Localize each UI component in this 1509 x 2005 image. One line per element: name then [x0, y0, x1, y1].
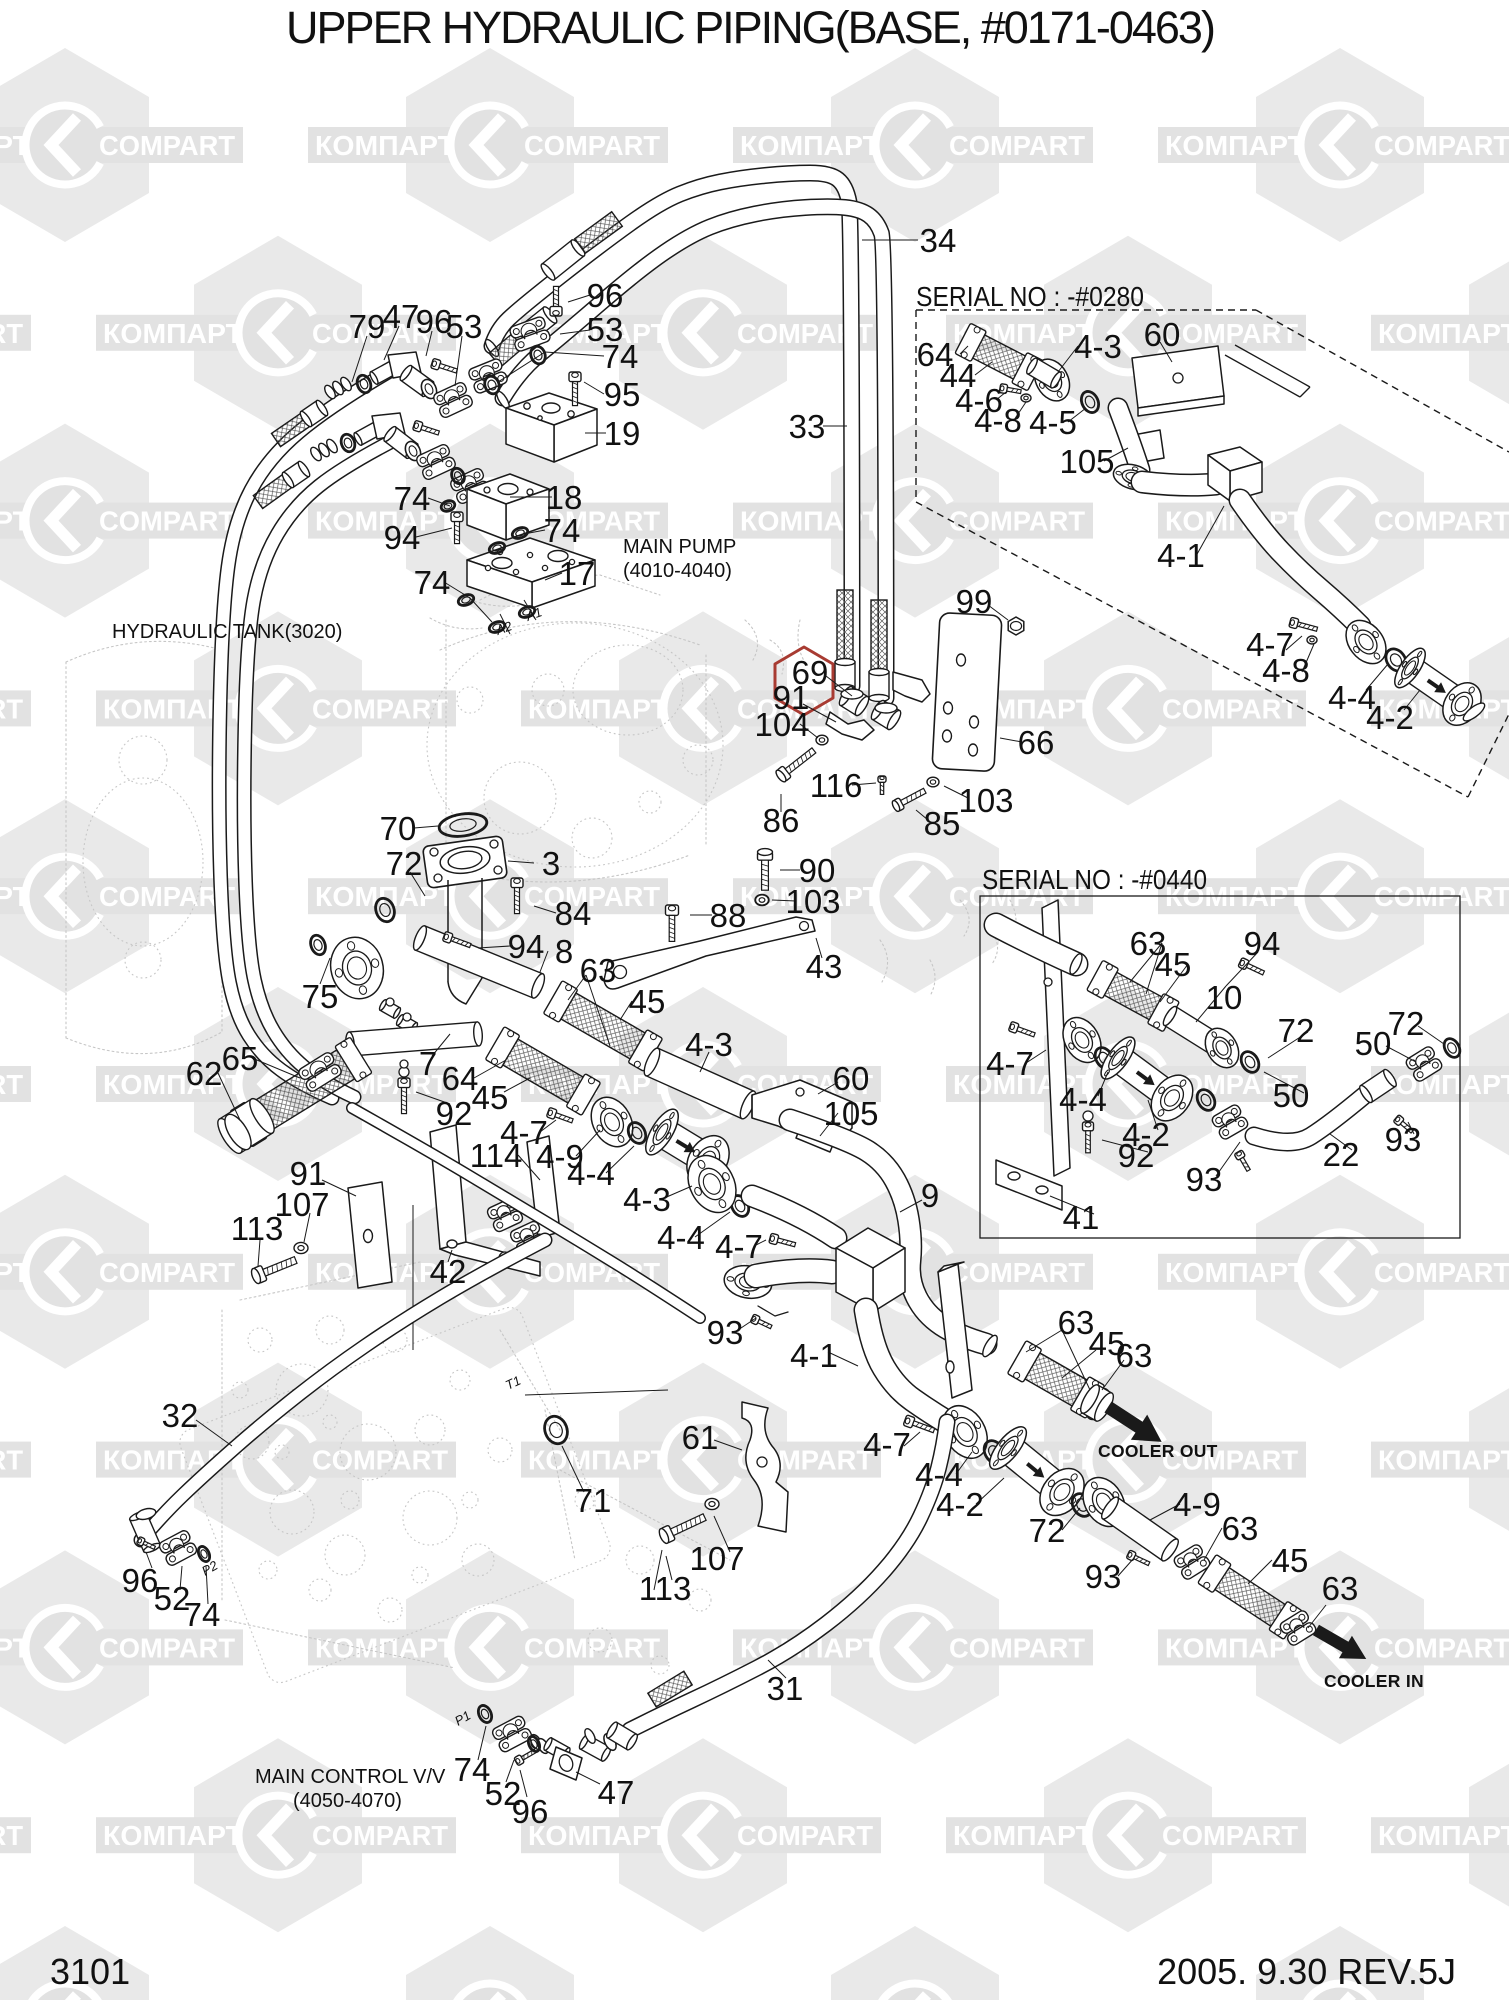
svg-text:КОМПАРТ: КОМПАРТ [1378, 1820, 1509, 1851]
svg-text:66: 66 [1018, 724, 1055, 761]
svg-text:КОМПАРТ: КОМПАРТ [103, 1820, 243, 1851]
svg-text:3: 3 [542, 845, 560, 882]
svg-text:50: 50 [1273, 1077, 1310, 1114]
svg-text:45: 45 [629, 983, 666, 1020]
svg-text:3101: 3101 [50, 1951, 130, 1992]
svg-text:104: 104 [754, 706, 809, 743]
svg-text:4-8: 4-8 [1262, 652, 1310, 689]
svg-text:113: 113 [231, 1210, 284, 1247]
svg-text:COMPART: COMPART [99, 1257, 235, 1288]
svg-text:74: 74 [394, 480, 431, 517]
svg-text:92: 92 [1118, 1137, 1155, 1174]
svg-text:4-1: 4-1 [1157, 537, 1205, 574]
svg-text:(4010-4040): (4010-4040) [623, 560, 732, 582]
svg-text:72: 72 [386, 845, 423, 882]
svg-text:COMPART: COMPART [0, 318, 23, 349]
svg-text:43: 43 [806, 948, 843, 985]
svg-text:47: 47 [383, 298, 420, 335]
svg-text:COMPART: COMPART [737, 1820, 873, 1851]
svg-text:79: 79 [349, 308, 386, 345]
svg-text:32: 32 [162, 1397, 199, 1434]
svg-text:COMPART: COMPART [524, 130, 660, 161]
svg-text:КОМПАРТ: КОМПАРТ [528, 1445, 668, 1476]
svg-text:КОМПАРТ: КОМПАРТ [740, 130, 880, 161]
svg-text:COMPART: COMPART [1162, 693, 1298, 724]
svg-text:COMPART: COMPART [99, 506, 235, 537]
svg-text:КОМПАРТ: КОМПАРТ [0, 130, 30, 161]
svg-text:КОМПАРТ: КОМПАРТ [0, 1257, 30, 1288]
svg-text:COMPART: COMPART [1374, 881, 1509, 912]
svg-text:COMPART: COMPART [312, 693, 448, 724]
svg-text:74: 74 [414, 564, 451, 601]
svg-text:63: 63 [1116, 1337, 1153, 1374]
svg-text:4-2: 4-2 [936, 1486, 984, 1523]
svg-text:КОМПАРТ: КОМПАРТ [315, 1632, 455, 1663]
svg-text:94: 94 [384, 519, 421, 556]
svg-text:COMPART: COMPART [1374, 1632, 1509, 1663]
svg-text:MAIN PUMP: MAIN PUMP [623, 536, 736, 558]
svg-text:113: 113 [639, 1570, 692, 1607]
svg-text:50: 50 [1355, 1025, 1392, 1062]
svg-text:КОМПАРТ: КОМПАРТ [1378, 1445, 1509, 1476]
svg-text:33: 33 [789, 408, 826, 445]
svg-text:COMPART: COMPART [99, 1632, 235, 1663]
svg-text:63: 63 [580, 952, 617, 989]
svg-text:86: 86 [763, 802, 800, 839]
svg-text:88: 88 [710, 897, 747, 934]
svg-text:4-5: 4-5 [1029, 404, 1077, 441]
svg-text:72: 72 [1388, 1005, 1425, 1042]
svg-text:КОМПАРТ: КОМПАРТ [1165, 130, 1305, 161]
svg-text:4-7: 4-7 [986, 1045, 1034, 1082]
svg-text:4-7: 4-7 [863, 1426, 911, 1463]
svg-text:COMPART: COMPART [0, 1069, 23, 1100]
svg-text:КОМПАРТ: КОМПАРТ [0, 1632, 30, 1663]
svg-text:96: 96 [512, 1793, 549, 1830]
svg-text:7: 7 [419, 1045, 437, 1082]
svg-text:45: 45 [472, 1079, 509, 1116]
svg-text:84: 84 [555, 895, 592, 932]
svg-text:MAIN CONTROL V/V: MAIN CONTROL V/V [255, 1766, 446, 1788]
svg-text:HYDRAULIC TANK(3020): HYDRAULIC TANK(3020) [112, 621, 342, 643]
svg-text:17: 17 [559, 555, 596, 592]
svg-text:COMPART: COMPART [949, 506, 1085, 537]
svg-text:114: 114 [470, 1137, 523, 1174]
svg-text:4-4: 4-4 [567, 1155, 615, 1192]
svg-text:COMPART: COMPART [524, 881, 660, 912]
svg-text:КОМПАРТ: КОМПАРТ [315, 130, 455, 161]
svg-text:SERIAL NO : -#0280: SERIAL NO : -#0280 [916, 281, 1144, 312]
svg-text:93: 93 [707, 1314, 744, 1351]
svg-text:31: 31 [767, 1670, 804, 1707]
svg-text:КОМПАРТ: КОМПАРТ [0, 506, 30, 537]
svg-text:85: 85 [924, 805, 961, 842]
svg-text:COMPART: COMPART [312, 1820, 448, 1851]
svg-text:74: 74 [184, 1596, 221, 1633]
svg-text:60: 60 [1144, 316, 1181, 353]
svg-text:COMPART: COMPART [1374, 1257, 1509, 1288]
svg-text:63: 63 [1322, 1570, 1359, 1607]
svg-text:93: 93 [1085, 1558, 1122, 1595]
svg-text:КОМПАРТ: КОМПАРТ [1378, 1069, 1509, 1100]
svg-text:COMPART: COMPART [1374, 506, 1509, 537]
svg-text:71: 71 [575, 1482, 612, 1519]
svg-text:92: 92 [436, 1095, 473, 1132]
svg-text:4-3: 4-3 [623, 1181, 671, 1218]
svg-text:SERIAL NO : -#0440: SERIAL NO : -#0440 [982, 864, 1207, 895]
svg-text:63: 63 [1222, 1510, 1259, 1547]
svg-text:COMPART: COMPART [949, 130, 1085, 161]
svg-text:COMPART: COMPART [99, 130, 235, 161]
svg-text:22: 22 [1323, 1136, 1360, 1173]
svg-text:COMPART: COMPART [949, 1257, 1085, 1288]
svg-text:(4050-4070): (4050-4070) [293, 1790, 402, 1812]
svg-text:60: 60 [833, 1060, 870, 1097]
svg-text:4-9: 4-9 [1173, 1486, 1221, 1523]
svg-text:4-8: 4-8 [974, 402, 1022, 439]
svg-text:95: 95 [604, 376, 641, 413]
svg-text:41: 41 [1063, 1199, 1100, 1236]
svg-text:53: 53 [446, 308, 483, 345]
svg-text:4-1: 4-1 [790, 1337, 838, 1374]
svg-text:КОМПАРТ: КОМПАРТ [1378, 318, 1509, 349]
svg-text:COMPART: COMPART [524, 1632, 660, 1663]
svg-text:2005. 9.30 REV.5J: 2005. 9.30 REV.5J [1157, 1951, 1456, 1992]
svg-text:КОМПАРТ: КОМПАРТ [1165, 1257, 1305, 1288]
svg-text:COMPART: COMPART [0, 693, 23, 724]
svg-text:103: 103 [958, 782, 1013, 819]
svg-text:COMPART: COMPART [0, 1820, 23, 1851]
svg-text:45: 45 [1155, 946, 1192, 983]
svg-text:99: 99 [956, 583, 993, 620]
svg-text:19: 19 [604, 415, 641, 452]
svg-text:КОМПАРТ: КОМПАРТ [528, 1820, 668, 1851]
svg-text:93: 93 [1385, 1121, 1422, 1158]
svg-text:93: 93 [1186, 1161, 1223, 1198]
svg-text:COMPART: COMPART [312, 1445, 448, 1476]
svg-text:105: 105 [823, 1095, 878, 1132]
svg-text:34: 34 [920, 222, 957, 259]
svg-text:4-3: 4-3 [685, 1026, 733, 1063]
svg-text:КОМПАРТ: КОМПАРТ [953, 1820, 1093, 1851]
svg-text:COOLER IN: COOLER IN [1324, 1671, 1424, 1691]
svg-text:4-2: 4-2 [1366, 699, 1414, 736]
svg-text:18: 18 [546, 479, 583, 516]
svg-text:COMPART: COMPART [949, 1632, 1085, 1663]
svg-text:72: 72 [1278, 1012, 1315, 1049]
svg-text:70: 70 [380, 810, 417, 847]
svg-text:COOLER OUT: COOLER OUT [1098, 1441, 1218, 1461]
svg-text:105: 105 [1059, 443, 1114, 480]
svg-text:8: 8 [555, 933, 573, 970]
svg-text:74: 74 [602, 338, 639, 375]
svg-text:КОМПАРТ: КОМПАРТ [0, 881, 30, 912]
svg-text:UPPER HYDRAULIC PIPING(BASE, #: UPPER HYDRAULIC PIPING(BASE, #0171-0463) [286, 2, 1214, 53]
svg-text:КОМПАРТ: КОМПАРТ [103, 318, 243, 349]
svg-text:COMPART: COMPART [1162, 1820, 1298, 1851]
svg-text:74: 74 [544, 512, 581, 549]
svg-text:107: 107 [689, 1540, 744, 1577]
svg-text:9: 9 [921, 1177, 939, 1214]
svg-text:65: 65 [222, 1040, 259, 1077]
svg-text:96: 96 [587, 277, 624, 314]
svg-text:61: 61 [682, 1419, 719, 1456]
svg-text:94: 94 [508, 928, 545, 965]
svg-text:94: 94 [1244, 925, 1281, 962]
svg-text:116: 116 [810, 767, 863, 804]
svg-text:103: 103 [785, 883, 840, 920]
svg-text:4-4: 4-4 [657, 1219, 705, 1256]
svg-text:45: 45 [1272, 1542, 1309, 1579]
svg-text:47: 47 [598, 1774, 635, 1811]
svg-text:4-4: 4-4 [1059, 1081, 1107, 1118]
svg-text:75: 75 [302, 978, 339, 1015]
svg-text:10: 10 [1206, 979, 1243, 1016]
svg-text:42: 42 [430, 1253, 467, 1290]
svg-text:4-7: 4-7 [715, 1228, 763, 1265]
svg-text:КОМПАРТ: КОМПАРТ [528, 693, 668, 724]
svg-text:72: 72 [1029, 1512, 1066, 1549]
svg-text:62: 62 [186, 1055, 223, 1092]
svg-text:COMPART: COMPART [0, 1445, 23, 1476]
svg-text:4-3: 4-3 [1074, 328, 1122, 365]
svg-text:COMPART: COMPART [1374, 130, 1509, 161]
